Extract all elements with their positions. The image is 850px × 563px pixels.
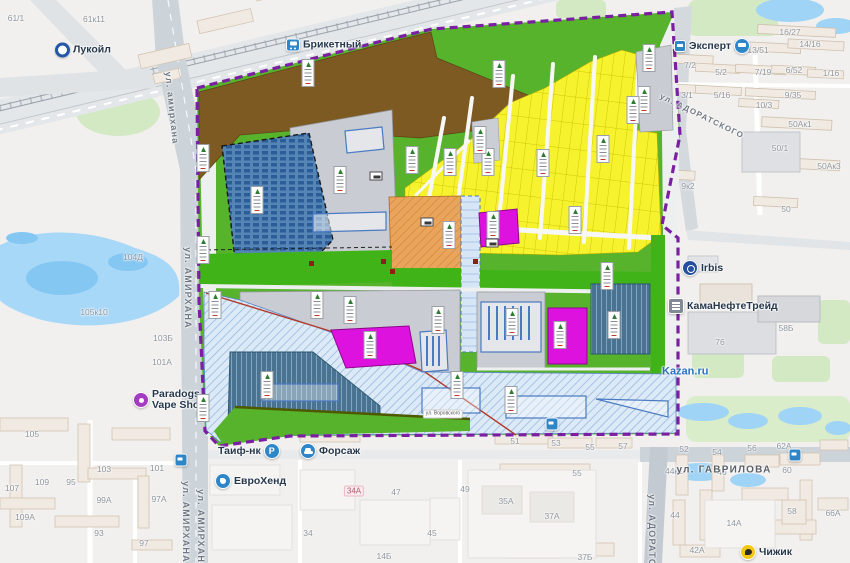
parcel-label-box [443, 221, 456, 249]
irbis-icon [682, 260, 698, 276]
street-label: ул. АМИРХАНА [196, 489, 206, 563]
house-number: 9к2 [681, 181, 694, 191]
poi-link[interactable]: Kazan.ru [662, 367, 708, 378]
house-number: 55 [572, 468, 581, 478]
parcel-label-box [474, 126, 487, 154]
house-number: 103Б [153, 333, 173, 343]
house-number: 47 [391, 487, 400, 497]
house-number: 13/51 [747, 45, 768, 55]
parcel-label-box [487, 211, 500, 239]
poi-name: Эксперт [689, 41, 731, 52]
poi-label[interactable]: Таиф-нк [218, 443, 280, 459]
parcel-label-box [344, 296, 357, 324]
house-number: 50 [781, 204, 790, 214]
house-number: 95 [66, 477, 75, 487]
parcel-label-box [554, 321, 567, 349]
parcel-label-box [209, 291, 222, 319]
house-number: 55 [585, 442, 594, 452]
parcel-label-box [608, 311, 621, 339]
house-number: 6/52 [786, 65, 803, 75]
poi-name: Форсаж [319, 446, 360, 457]
house-number: 14/16 [799, 39, 820, 49]
bus-stop-icon[interactable] [546, 418, 559, 431]
house-number: 1/16 [823, 68, 840, 78]
house-number: 66А [825, 508, 840, 518]
house-number: 50/1 [772, 143, 789, 153]
bus-stop-icon[interactable] [175, 454, 188, 467]
parcel-label-box [569, 206, 582, 234]
poi-label[interactable]: ЕвроХенд [215, 473, 286, 489]
house-number: 37Б [577, 552, 592, 562]
parcel-label-box [364, 331, 377, 359]
house-number: 99А [96, 495, 111, 505]
house-number: 54 [712, 447, 721, 457]
house-number: 60 [782, 465, 791, 475]
house-number: 51 [510, 436, 519, 446]
poi-label[interactable]: Irbis [682, 260, 723, 276]
bird-icon [740, 544, 756, 560]
house-number: 14Б [376, 551, 391, 561]
house-number: 104Д [123, 252, 143, 262]
parcel-label-box [601, 262, 614, 290]
parcel-label-box [197, 144, 210, 172]
house-number: 7/2 [684, 60, 696, 70]
house-number: 76 [715, 337, 724, 347]
poi-name: Irbis [701, 263, 723, 274]
house-number: 37А [544, 511, 559, 521]
parcel-label-box [451, 371, 464, 399]
parcel-label-box [302, 59, 315, 87]
parcel-label-box [251, 186, 264, 214]
lukoil-icon [55, 43, 70, 58]
house-number: 44 [670, 510, 679, 520]
poi-name: Kazan.ru [662, 367, 708, 378]
street-label: ул. ГАВРИЛОВА [676, 465, 771, 476]
poi-name: КамаНефтеТрейд [687, 301, 778, 312]
poi-name: Брикетный [303, 40, 361, 51]
bus-icon [734, 38, 750, 54]
street-label: ул. амирхана [163, 71, 181, 145]
house-number: 109 [35, 477, 49, 487]
transit-icon [674, 40, 686, 52]
house-number: 101А [152, 357, 172, 367]
house-number: 50Ак3 [817, 161, 841, 171]
house-number: 42А [689, 545, 704, 555]
house-number: 109А [15, 512, 35, 522]
labels-layer: 61/161к1116/2714/1613/517/25/27/196/521/… [0, 0, 850, 563]
car-icon [300, 443, 316, 459]
parcel-label-box [597, 135, 610, 163]
house-number: 49 [460, 484, 469, 494]
house-number: 52 [679, 444, 688, 454]
house-number: 50Ак1 [788, 119, 812, 129]
house-number: 7/19 [755, 67, 772, 77]
house-number: 34А [344, 486, 364, 497]
house-number: 3/1 [681, 90, 693, 100]
street-label: ул. АМИРХАНА [181, 481, 191, 563]
house-number: 57 [618, 441, 627, 451]
parcel-label-box [261, 371, 274, 399]
zone-code-badge [370, 172, 383, 181]
house-number: 9/35 [785, 90, 802, 100]
parcel-label-box [505, 386, 518, 414]
house-number: 101 [150, 463, 164, 473]
poi-name: Лукойл [73, 45, 111, 56]
train-icon [286, 39, 300, 52]
parcel-label-box [406, 146, 419, 174]
house-number: 103 [97, 464, 111, 474]
house-number: 61к11 [83, 14, 105, 24]
parcel-label-box [506, 308, 519, 336]
house-number: 58Б [778, 323, 793, 333]
house-number: 93 [94, 528, 103, 538]
street-label: ул. АДОРАТСКОГО [659, 92, 746, 141]
poi-label[interactable]: КамаНефтеТрейд [668, 298, 778, 314]
house-number: 97А [151, 494, 166, 504]
poi-label[interactable]: Лукойл [55, 43, 111, 58]
poi-label[interactable]: Эксперт [674, 38, 750, 54]
house-number: 107 [5, 483, 19, 493]
parcel-label-box [643, 44, 656, 72]
house-number: 16/27 [779, 27, 800, 37]
house-number: 14А [726, 518, 741, 528]
building-icon [668, 298, 684, 314]
parcel-label-box [197, 236, 210, 264]
parcel-label-box [537, 149, 550, 177]
house-number: 97 [139, 538, 148, 548]
parcel-label-box [493, 60, 506, 88]
house-number: 10/3 [756, 100, 773, 110]
house-number: 35А [498, 496, 513, 506]
parcel-label-box [311, 291, 324, 319]
parcel-label-box [197, 394, 210, 422]
poi-name: ЕвроХенд [234, 476, 286, 487]
poi-label[interactable]: Чижик [740, 544, 792, 560]
poi-name: Таиф-нк [218, 446, 261, 457]
house-number: 56 [747, 443, 756, 453]
poi-label[interactable]: Форсаж [300, 443, 360, 459]
parcel-label-box [334, 166, 347, 194]
house-number: 58 [787, 506, 796, 516]
map-screenshot: 61/161к1116/2714/1613/517/25/27/196/521/… [0, 0, 850, 563]
plan-street-badge: ул. Воровского [423, 410, 463, 419]
poi-label[interactable]: Брикетный [286, 39, 361, 52]
house-number: 53 [551, 438, 560, 448]
house-number: 5/2 [715, 67, 727, 77]
house-number: 61/1 [8, 13, 25, 23]
poi-name: Чижик [759, 547, 792, 558]
parcel-label-box [627, 96, 640, 124]
street-label: ул. АМИРХАНА [183, 247, 193, 329]
zone-code-badge [421, 218, 434, 227]
house-number: 34 [303, 528, 312, 538]
zone-code-badge [486, 239, 499, 248]
fuel-icon [264, 443, 280, 459]
shop-icon [215, 473, 231, 489]
parcel-label-box [444, 148, 457, 176]
poi-label[interactable]: ParadogsVape Shop [133, 389, 206, 411]
paradogs-icon [133, 392, 149, 408]
house-number: 45 [427, 528, 436, 538]
street-label: ул. АДОРАТСКОГО [647, 494, 657, 563]
bus-stop-icon[interactable] [789, 449, 802, 462]
parcel-label-box [432, 306, 445, 334]
house-number: 105 [25, 429, 39, 439]
house-number: 105к10 [80, 307, 107, 317]
house-number: 5/16 [714, 90, 731, 100]
